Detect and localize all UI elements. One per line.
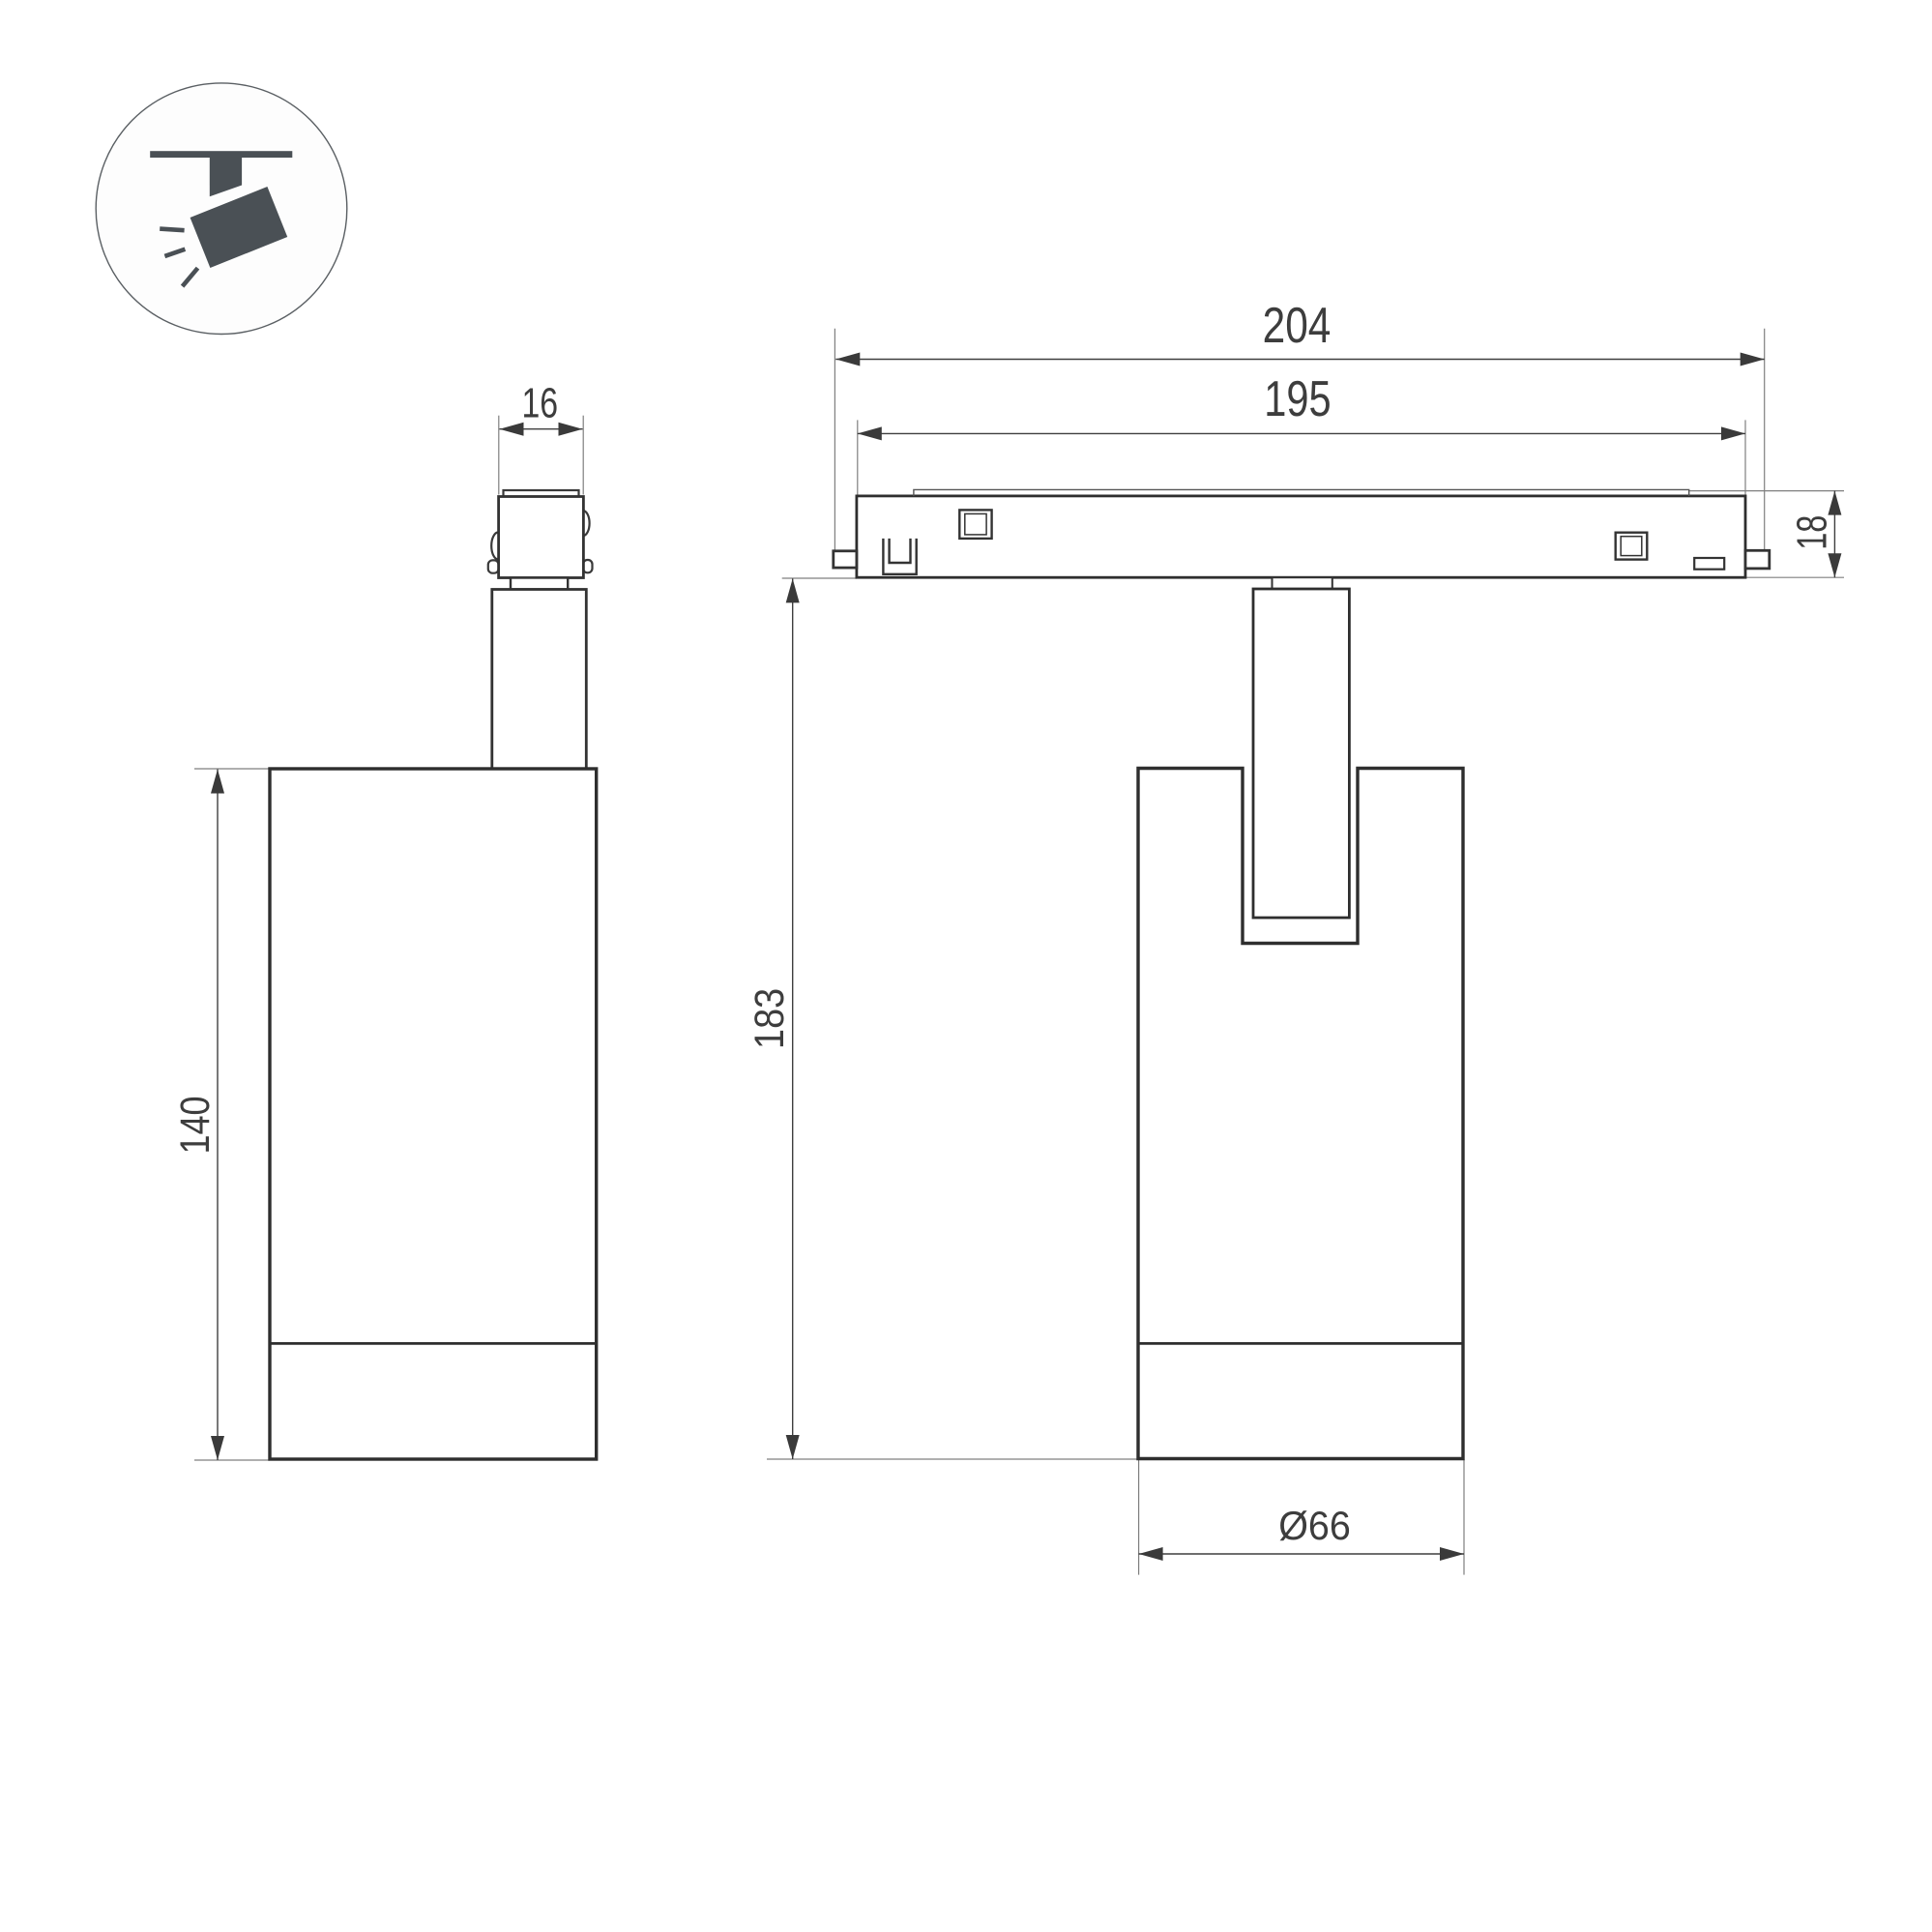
svg-text:195: 195 xyxy=(1264,370,1331,427)
svg-text:18: 18 xyxy=(1789,515,1836,550)
svg-text:Ø66: Ø66 xyxy=(1278,1503,1351,1548)
svg-text:140: 140 xyxy=(172,1097,219,1155)
svg-text:16: 16 xyxy=(521,379,558,426)
svg-text:204: 204 xyxy=(1263,298,1332,354)
svg-text:183: 183 xyxy=(746,988,793,1049)
